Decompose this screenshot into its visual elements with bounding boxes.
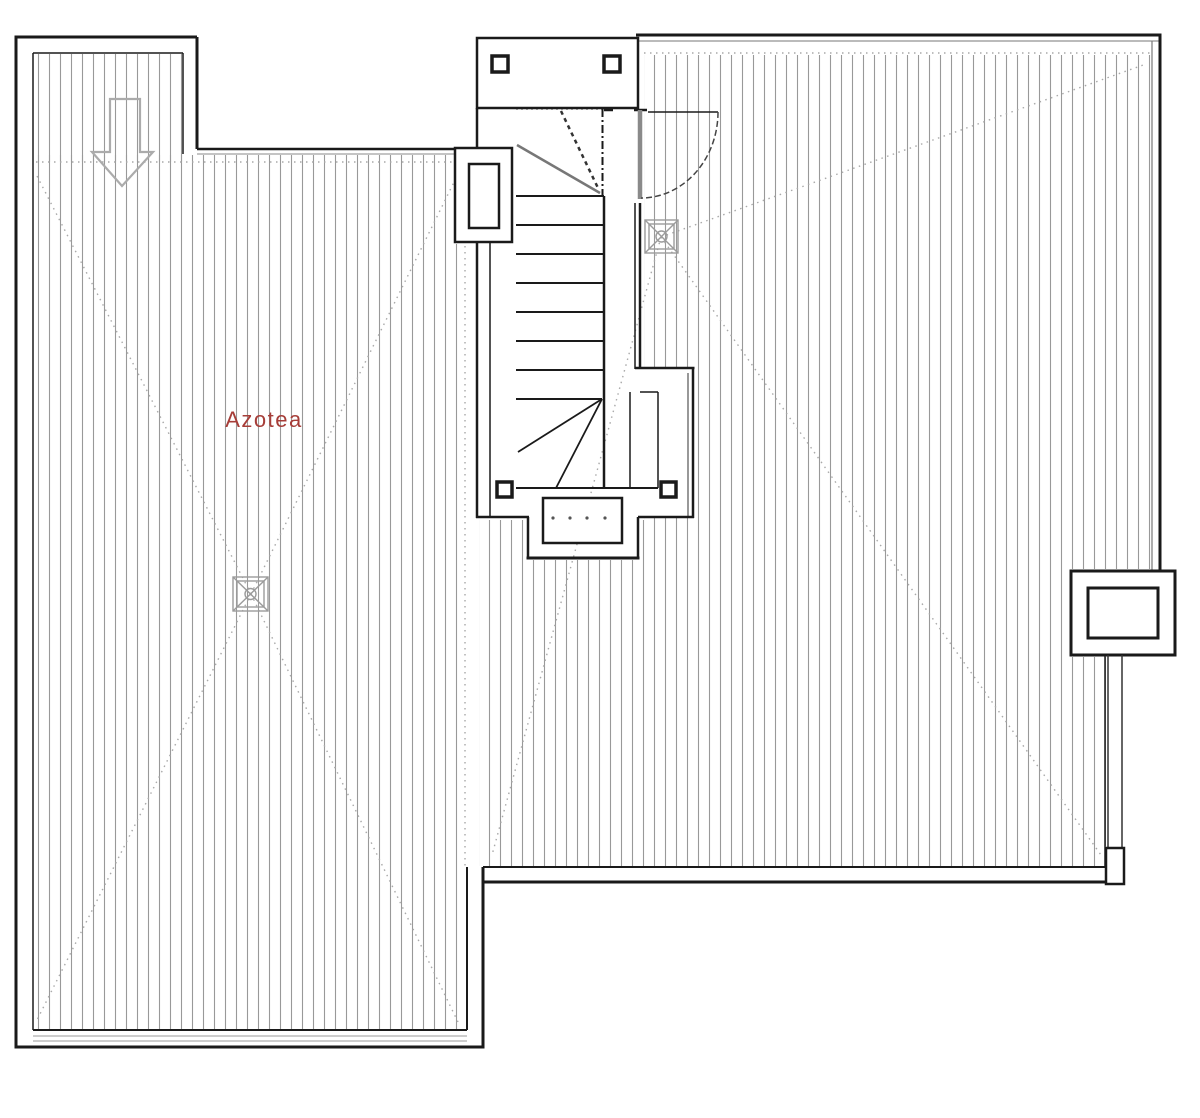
stair-treads	[516, 109, 658, 489]
floor-plan-page: Azotea	[0, 0, 1200, 1118]
room-label: Azotea	[225, 407, 303, 432]
floor-plan-svg: Azotea	[0, 0, 1200, 1118]
service-box	[1071, 571, 1175, 655]
